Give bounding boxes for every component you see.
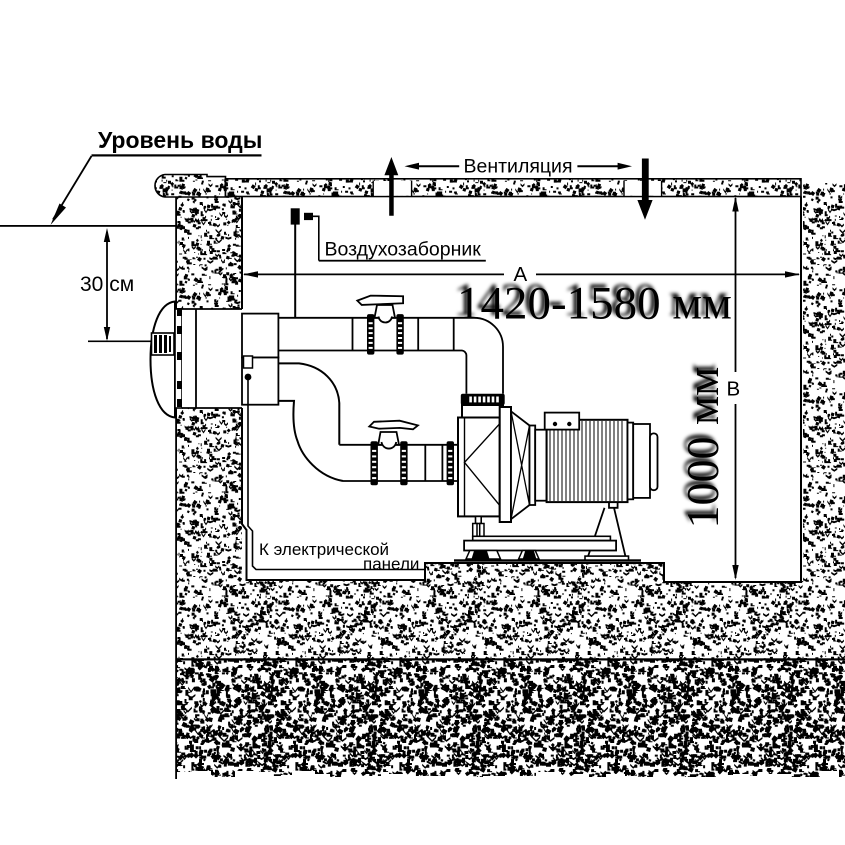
svg-text:В: В — [727, 378, 741, 401]
svg-text:1420-1580 мм: 1420-1580 мм — [457, 278, 732, 330]
svg-text:Воздухозаборник: Воздухозаборник — [325, 239, 482, 261]
svg-text:30 см: 30 см — [80, 273, 134, 296]
svg-text:Вентиляция: Вентиляция — [464, 156, 573, 178]
svg-text:1000 мм: 1000 мм — [677, 367, 728, 529]
svg-text:панели: панели — [363, 555, 419, 574]
svg-text:Уровень воды: Уровень воды — [98, 127, 262, 153]
